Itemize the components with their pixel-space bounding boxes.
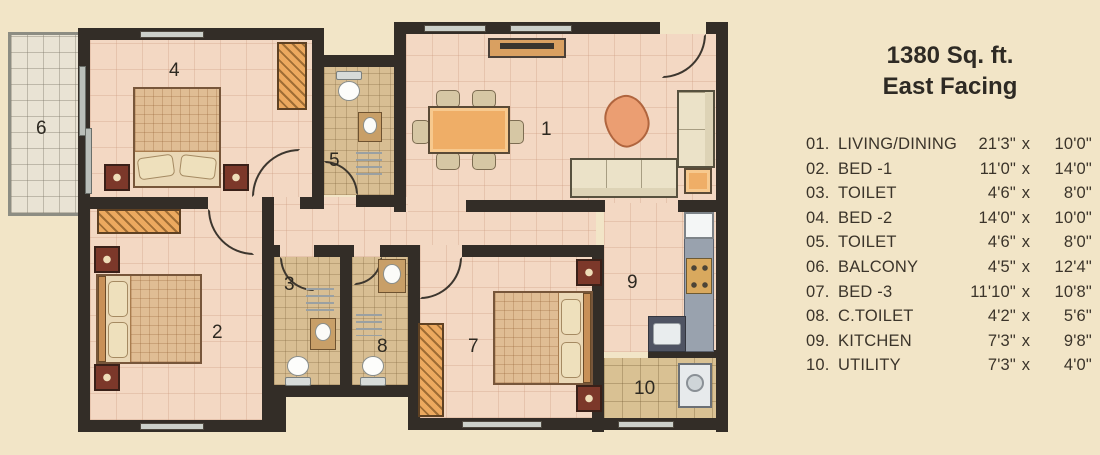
legend-dim-separator: x <box>1016 255 1036 280</box>
wall <box>408 418 728 430</box>
legend-row: 05. TOILET 4'6" x 8'0" <box>806 230 1092 255</box>
nightstand <box>94 364 120 391</box>
legend-row: 07. BED -3 11'10" x 10'8" <box>806 280 1092 305</box>
legend-room-name: BED -1 <box>838 157 960 182</box>
bed-pillows <box>106 276 130 362</box>
room-label-balcony: 6 <box>36 118 47 140</box>
toilet-tank <box>285 377 311 386</box>
legend-dim-width: 7'3" <box>960 353 1016 378</box>
legend-dim-width: 14'0" <box>960 206 1016 231</box>
legend-dim-height: 9'8" <box>1036 329 1092 354</box>
legend-dim-height: 12'4" <box>1036 255 1092 280</box>
pillow <box>179 154 217 180</box>
nightstand <box>94 246 120 273</box>
legend-dim-width: 4'2" <box>960 304 1016 329</box>
toilet-tank <box>360 377 386 386</box>
legend-dim-separator: x <box>1016 230 1036 255</box>
wall <box>340 257 352 397</box>
pillow <box>108 322 128 358</box>
toilet-seat <box>338 81 360 101</box>
fridge <box>684 212 714 239</box>
legend-room-name: TOILET <box>838 230 960 255</box>
window <box>462 421 542 428</box>
legend-row: 08. C.TOILET 4'2" x 5'6" <box>806 304 1092 329</box>
toilet-seat <box>362 356 384 376</box>
washing-machine <box>678 363 712 408</box>
wall <box>394 22 406 212</box>
bed-blanket <box>495 293 559 383</box>
toilet-tank <box>336 71 362 80</box>
legend-dim-width: 4'6" <box>960 230 1016 255</box>
legend-dim-separator: x <box>1016 329 1036 354</box>
toilet-bowl <box>285 354 311 386</box>
legend-dim-separator: x <box>1016 132 1036 157</box>
legend-row: 10. UTILITY 7'3" x 4'0" <box>806 353 1092 378</box>
washbasin <box>310 318 336 350</box>
legend-room-name: BED -2 <box>838 206 960 231</box>
legend-dim-height: 8'0" <box>1036 181 1092 206</box>
legend-dim-height: 10'8" <box>1036 280 1092 305</box>
shower <box>356 314 382 336</box>
kitchen-sink <box>648 316 686 352</box>
pillow <box>561 342 581 378</box>
room-label-bed-1: 2 <box>212 322 223 344</box>
legend-index: 01. <box>806 132 838 157</box>
wall <box>462 245 604 257</box>
room-label-utility: 10 <box>634 378 655 400</box>
legend-index: 03. <box>806 181 838 206</box>
dining-chair <box>436 152 460 170</box>
floor-plan-page: 1 2 3 4 5 6 7 8 9 10 1380 Sq. ft. East F… <box>0 0 1100 455</box>
room-label-toilet-2: 5 <box>329 150 340 172</box>
area-title-line1: 1380 Sq. ft. <box>800 40 1100 71</box>
legend-dim-height: 8'0" <box>1036 230 1092 255</box>
bed-blanket <box>135 89 219 152</box>
dining-chair <box>472 152 496 170</box>
bed-blanket <box>130 276 200 362</box>
area-title: 1380 Sq. ft. East Facing <box>800 40 1100 102</box>
window <box>510 25 572 32</box>
room-legend: 01. LIVING/DINING 21'3" x 10'0" 02. BED … <box>806 132 1092 378</box>
wall <box>380 245 408 257</box>
nightstand <box>223 164 249 191</box>
toilet-bowl <box>360 354 386 386</box>
legend-dim-width: 4'5" <box>960 255 1016 280</box>
legend-dim-width: 21'3" <box>960 132 1016 157</box>
legend-dim-height: 10'0" <box>1036 206 1092 231</box>
legend-dim-separator: x <box>1016 157 1036 182</box>
legend-dim-separator: x <box>1016 280 1036 305</box>
legend-room-name: LIVING/DINING <box>838 132 960 157</box>
area-title-line2: East Facing <box>800 71 1100 102</box>
legend-room-name: BED -3 <box>838 280 960 305</box>
legend-index: 07. <box>806 280 838 305</box>
dining-table <box>428 106 510 154</box>
legend-dim-height: 5'6" <box>1036 304 1092 329</box>
balcony-floor <box>8 32 86 216</box>
wall <box>466 200 605 212</box>
legend-row: 03. TOILET 4'6" x 8'0" <box>806 181 1092 206</box>
legend-index: 09. <box>806 329 838 354</box>
nightstand <box>104 164 130 191</box>
legend-index: 05. <box>806 230 838 255</box>
wardrobe <box>97 209 181 234</box>
wall <box>314 245 354 257</box>
bed-pillows <box>135 152 219 178</box>
toilet-bowl <box>336 71 362 103</box>
legend-dim-separator: x <box>1016 353 1036 378</box>
wall <box>262 197 274 432</box>
shower <box>306 288 334 312</box>
legend-room-name: C.TOILET <box>838 304 960 329</box>
legend-index: 02. <box>806 157 838 182</box>
window <box>140 31 204 38</box>
legend-dim-width: 4'6" <box>960 181 1016 206</box>
bed-pillows <box>559 293 583 383</box>
room-label-toilet-1: 3 <box>284 274 295 296</box>
legend-dim-height: 10'0" <box>1036 132 1092 157</box>
shower <box>356 152 382 178</box>
pillow <box>108 281 128 317</box>
room-label-c-toilet: 8 <box>377 336 388 358</box>
legend-row: 04. BED -2 14'0" x 10'0" <box>806 206 1092 231</box>
washbasin <box>358 112 382 142</box>
legend-dim-width: 7'3" <box>960 329 1016 354</box>
legend-room-name: BALCONY <box>838 255 960 280</box>
legend-dim-height: 4'0" <box>1036 353 1092 378</box>
legend-row: 01. LIVING/DINING 21'3" x 10'0" <box>806 132 1092 157</box>
legend-room-name: KITCHEN <box>838 329 960 354</box>
bed-headboard <box>583 293 591 383</box>
sofa <box>570 158 678 198</box>
side-table <box>684 168 712 194</box>
floor-plan: 1 2 3 4 5 6 7 8 9 10 <box>0 0 790 455</box>
legend-dim-height: 14'0" <box>1036 157 1092 182</box>
double-bed <box>96 274 202 364</box>
window <box>424 25 486 32</box>
wall <box>716 22 728 432</box>
wall <box>274 385 286 432</box>
toilet-seat <box>287 356 309 376</box>
wall <box>78 197 208 209</box>
room-label-bed-3: 7 <box>468 336 479 358</box>
window <box>618 421 674 428</box>
nightstand <box>576 259 602 286</box>
balcony-sliding-door <box>85 128 92 194</box>
legend-row: 06. BALCONY 4'5" x 12'4" <box>806 255 1092 280</box>
legend-dim-width: 11'10" <box>960 280 1016 305</box>
legend-room-name: UTILITY <box>838 353 960 378</box>
legend-index: 04. <box>806 206 838 231</box>
room-label-bed-2: 4 <box>169 60 180 82</box>
legend-index: 06. <box>806 255 838 280</box>
balcony-sliding-door <box>79 66 86 136</box>
tv-console <box>488 38 566 58</box>
pillow <box>137 154 176 181</box>
legend-dim-separator: x <box>1016 304 1036 329</box>
legend-dim-separator: x <box>1016 206 1036 231</box>
wall <box>356 195 406 207</box>
legend-row: 02. BED -1 11'0" x 14'0" <box>806 157 1092 182</box>
wall <box>312 55 406 67</box>
kitchen-counter <box>684 238 714 352</box>
sink-basin <box>653 323 681 345</box>
bed-headboard <box>98 276 106 362</box>
double-bed <box>493 291 593 385</box>
wardrobe <box>418 323 444 417</box>
nightstand <box>576 385 602 412</box>
legend-dim-separator: x <box>1016 181 1036 206</box>
legend-index: 08. <box>806 304 838 329</box>
legend-index: 10. <box>806 353 838 378</box>
stove <box>686 258 712 294</box>
sofa <box>677 90 715 168</box>
legend-dim-width: 11'0" <box>960 157 1016 182</box>
pillow <box>561 299 581 335</box>
legend-room-name: TOILET <box>838 181 960 206</box>
wall <box>678 200 716 212</box>
room-label-living-dining: 1 <box>541 119 552 141</box>
room-label-kitchen: 9 <box>627 272 638 294</box>
washbasin <box>378 259 406 293</box>
double-bed <box>133 87 221 188</box>
wall <box>312 55 324 207</box>
legend-row: 09. KITCHEN 7'3" x 9'8" <box>806 329 1092 354</box>
window <box>140 423 204 430</box>
wardrobe <box>277 42 307 110</box>
